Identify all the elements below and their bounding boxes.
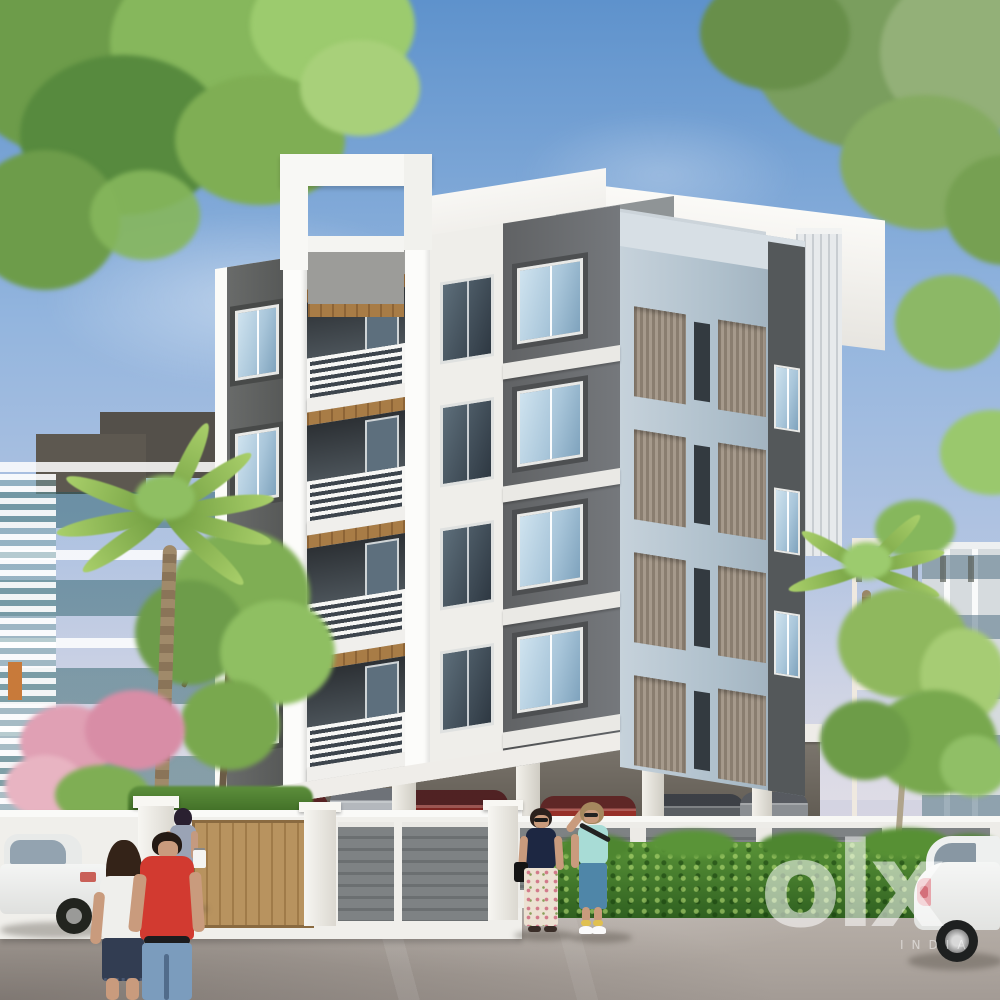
person-woman-teal-top <box>566 802 620 938</box>
balcony-door <box>365 415 399 474</box>
sneaker <box>579 926 593 934</box>
hedge-bump <box>650 830 735 858</box>
louver-panel <box>718 320 766 418</box>
apartment-render-photo: olx INDIA <box>0 0 1000 1000</box>
window-slot <box>694 322 710 403</box>
louver-panel <box>634 552 686 650</box>
window-dark <box>440 643 494 734</box>
floor-slab-band <box>503 591 620 626</box>
louver-panel <box>634 429 686 527</box>
floral-trousers <box>524 868 558 926</box>
window <box>235 304 279 381</box>
capri-jeans <box>579 863 607 909</box>
jeans-seam <box>164 954 169 1000</box>
window <box>774 610 800 678</box>
floor-slab-band <box>503 468 620 503</box>
louver-panel <box>634 306 686 404</box>
sunglasses <box>584 813 598 817</box>
person-man-red-shirt <box>124 832 210 1000</box>
foliage-blob <box>90 170 200 260</box>
arm <box>554 836 564 870</box>
portal-leg-right <box>404 154 432 250</box>
arm <box>571 834 579 868</box>
window-slot <box>694 445 710 526</box>
garage-shutter <box>402 822 488 921</box>
portal-inner-top <box>308 186 404 318</box>
wooden-gate <box>192 820 314 928</box>
window <box>517 258 583 344</box>
wood-soffit <box>308 304 404 317</box>
window-dark <box>440 274 494 365</box>
floor-slab-band <box>503 345 620 380</box>
louver-panel <box>718 689 766 787</box>
foliage-blob <box>940 410 1000 495</box>
window-slot <box>694 691 710 772</box>
sedan-rear-window <box>10 840 66 864</box>
sandal <box>544 926 557 932</box>
sedan-hubcap <box>66 908 82 924</box>
balcony-door <box>365 538 399 597</box>
corner-dark-block <box>503 205 620 769</box>
portal-leg-right-lower <box>405 235 430 784</box>
portal-leg-left <box>280 154 308 270</box>
sandal <box>528 926 541 932</box>
white-wall-strip <box>430 224 503 781</box>
balcony-door <box>365 661 399 720</box>
window-slot <box>694 568 710 649</box>
olx-watermark: olx INDIA <box>760 826 1000 966</box>
foliage-blob <box>895 275 1000 370</box>
louver-panel <box>718 443 766 541</box>
window <box>517 381 583 467</box>
olx-logo-text: olx <box>760 816 940 954</box>
foliage-blob <box>820 700 910 780</box>
window <box>517 504 583 590</box>
flower-blob <box>85 690 185 770</box>
garage-shutter <box>338 822 394 921</box>
louver-panel <box>634 675 686 773</box>
window <box>517 627 583 713</box>
window <box>774 487 800 555</box>
foliage-blob <box>940 735 1000 797</box>
olx-india-text: INDIA <box>900 938 974 952</box>
portal-gray-wall <box>308 252 404 304</box>
palm-crown-center <box>135 475 195 520</box>
leg <box>106 978 119 1000</box>
sneaker <box>592 926 606 934</box>
sunglasses <box>534 818 548 822</box>
window-dark <box>440 397 494 488</box>
louver-panel <box>718 566 766 664</box>
navy-top <box>526 828 556 870</box>
person-woman-navy-top <box>514 806 568 938</box>
parked-car <box>740 792 808 818</box>
main-building-right-facade <box>620 212 805 796</box>
window-dark <box>440 520 494 611</box>
foliage-blob <box>300 40 420 136</box>
portal-parapet <box>308 236 404 252</box>
red-tshirt <box>140 856 194 940</box>
window <box>774 364 800 432</box>
gate-pillar <box>304 810 336 926</box>
